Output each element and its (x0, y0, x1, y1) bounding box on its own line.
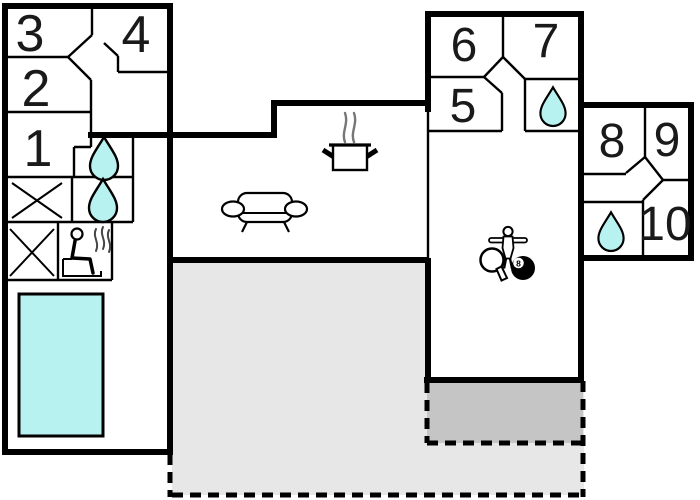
steam-icon (344, 113, 355, 142)
floorplan-canvas: 8 1 2 3 4 5 6 7 8 9 10 (0, 0, 700, 500)
room-label-10: 10 (638, 198, 691, 251)
room-label-6: 6 (451, 19, 478, 72)
table-tennis-paddle-icon (481, 249, 508, 281)
shower-drop-icon (90, 137, 118, 180)
room-label-2: 2 (22, 60, 51, 118)
crossed-square-icon (10, 229, 54, 276)
billiard-ball-number: 8 (516, 258, 521, 268)
swimming-pool (19, 294, 103, 436)
cooking-pot-icon (323, 113, 377, 170)
shower-drop-icon (540, 87, 565, 126)
shower-drop-icon (598, 212, 623, 251)
room-label-4: 4 (122, 6, 151, 64)
sauna-icon (63, 227, 110, 276)
room-label-8: 8 (599, 115, 626, 168)
room-label-7: 7 (533, 15, 560, 68)
sofa-icon (222, 193, 307, 232)
billiard-ball-icon: 8 (511, 256, 535, 280)
covered-terrace-floor (427, 382, 583, 443)
covered-terrace-area (427, 382, 583, 443)
room-label-1: 1 (24, 120, 53, 178)
crossed-square-icon (12, 183, 62, 218)
room-label-5: 5 (450, 80, 477, 133)
room-label-9: 9 (654, 114, 681, 167)
shower-drop-icon (89, 179, 117, 222)
room-label-3: 3 (16, 5, 45, 63)
